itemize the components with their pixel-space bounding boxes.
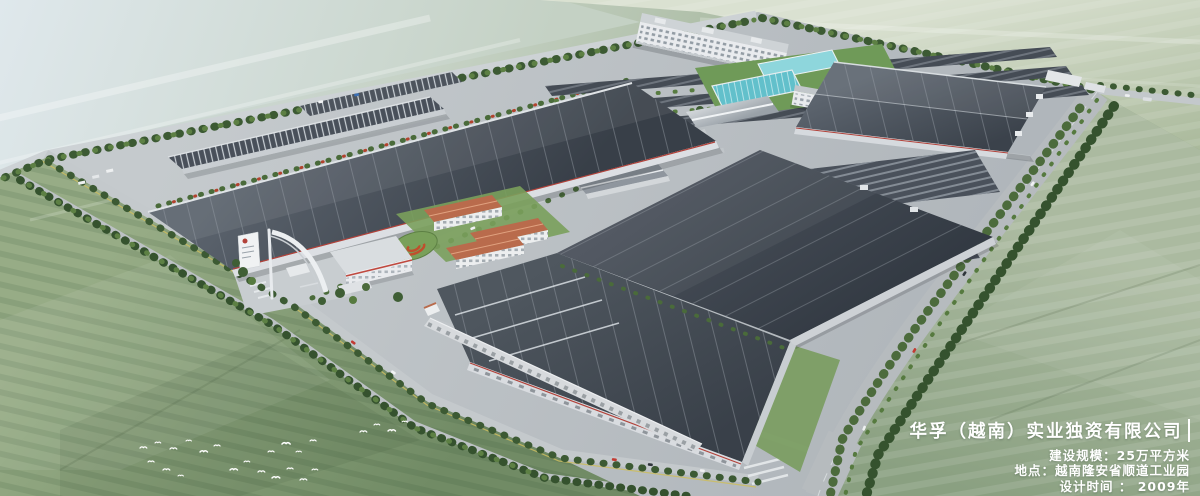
detail-location: 地点：越南隆安省顺道工业园 [910, 463, 1191, 479]
bird [287, 468, 293, 469]
company-title: 华孚（越南）实业独资有限公司 [910, 418, 1191, 443]
caption-block: 华孚（越南）实业独资有限公司 建设规模：25万平方米 地点：越南隆安省顺道工业园… [910, 418, 1191, 495]
title-separator-bar [1188, 419, 1191, 442]
bird [148, 461, 154, 462]
tree [393, 292, 403, 302]
bird [402, 421, 407, 422]
dock-unit [1036, 94, 1043, 99]
bird [140, 447, 147, 448]
detail-scale: 建设规模：25万平方米 [910, 448, 1191, 464]
bird [360, 431, 367, 432]
bird [296, 451, 301, 452]
bird [374, 424, 380, 425]
bird [155, 442, 161, 443]
bird [300, 479, 307, 480]
bird [258, 471, 265, 472]
bird [244, 461, 250, 462]
bird [214, 445, 220, 446]
roof-unit [860, 185, 868, 190]
bird [272, 477, 280, 478]
logo-mark [243, 239, 248, 244]
bird [170, 448, 177, 449]
aerial-rendering-stage: 华孚（越南）实业独资有限公司 建设规模：25万平方米 地点：越南隆安省顺道工业园… [0, 0, 1200, 496]
tree [349, 296, 357, 304]
car [1125, 94, 1130, 97]
dock-unit [1015, 131, 1022, 136]
bird [388, 430, 395, 431]
bird [312, 469, 318, 470]
bird [200, 451, 207, 452]
bird [163, 469, 170, 470]
tree [238, 267, 248, 277]
sign-wall [238, 232, 260, 270]
tree [248, 277, 256, 285]
dock-unit [1026, 112, 1033, 117]
company-name: 华孚（越南）实业独资有限公司 [910, 418, 1183, 443]
tree [362, 283, 370, 291]
tree [335, 288, 345, 298]
detail-design-date: 设计时间 ： 2009年 [910, 479, 1191, 495]
bird [178, 475, 183, 476]
roof-unit [910, 207, 918, 212]
tree [232, 259, 240, 267]
bird [186, 440, 191, 441]
bird [310, 440, 316, 441]
bird [230, 469, 237, 470]
bird [282, 443, 290, 444]
bird [268, 451, 274, 452]
tree [318, 297, 326, 305]
